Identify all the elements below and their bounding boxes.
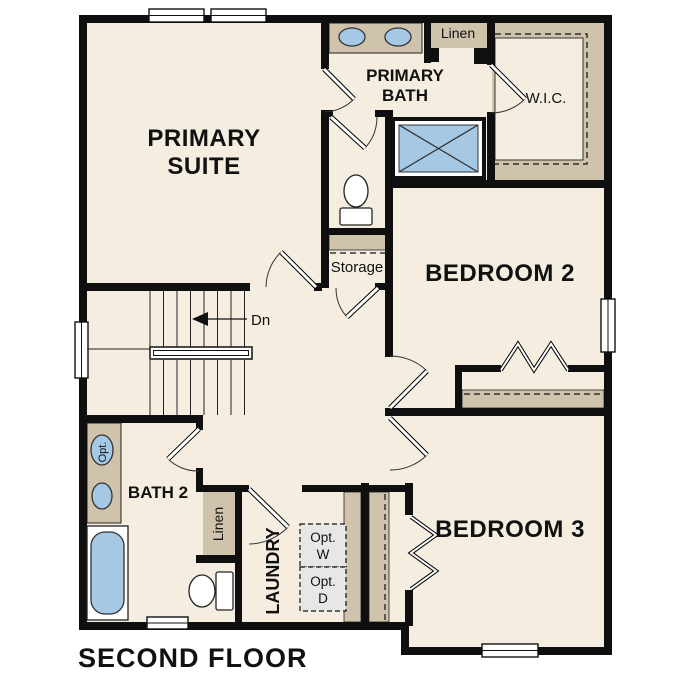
label-primary-bath-line1: PRIMARY [366, 66, 444, 85]
label-stair-dn: Dn [251, 312, 270, 329]
floor-plan: PRIMARY SUITE PRIMARY BATH W.I.C. Linen … [0, 0, 687, 687]
window [482, 644, 538, 657]
label-storage: Storage [331, 259, 384, 276]
label-bath-2: BATH 2 [128, 483, 188, 502]
label-primary-suite-line1: PRIMARY [147, 125, 260, 152]
window [147, 617, 188, 629]
window [211, 9, 266, 22]
label-linen-upper: Linen [441, 25, 475, 41]
window [149, 9, 204, 22]
floor-plan-page: PRIMARY SUITE PRIMARY BATH W.I.C. Linen … [0, 0, 687, 687]
label-primary-bath-line2: BATH [382, 86, 428, 105]
label-opt-washer-line2: W [317, 547, 330, 562]
label-opt-washer-line1: Opt. [310, 530, 336, 545]
label-bedroom-2: BEDROOM 2 [425, 260, 575, 287]
shower [393, 119, 484, 178]
bathtub [87, 526, 128, 620]
label-primary-suite-line2: SUITE [167, 153, 240, 180]
window [75, 322, 88, 378]
label-laundry: LAUNDRY [263, 527, 283, 614]
label-linen-lower: Linen [210, 507, 226, 541]
label-opt-sink: Opt. [97, 442, 109, 463]
page-title: SECOND FLOOR [78, 643, 308, 673]
label-opt-dryer-line1: Opt. [310, 574, 336, 589]
label-opt-dryer-line2: D [318, 591, 328, 606]
stair-handrail [150, 347, 252, 359]
label-bedroom-3: BEDROOM 3 [435, 516, 585, 543]
label-wic: W.I.C. [526, 90, 567, 107]
window [601, 299, 615, 352]
